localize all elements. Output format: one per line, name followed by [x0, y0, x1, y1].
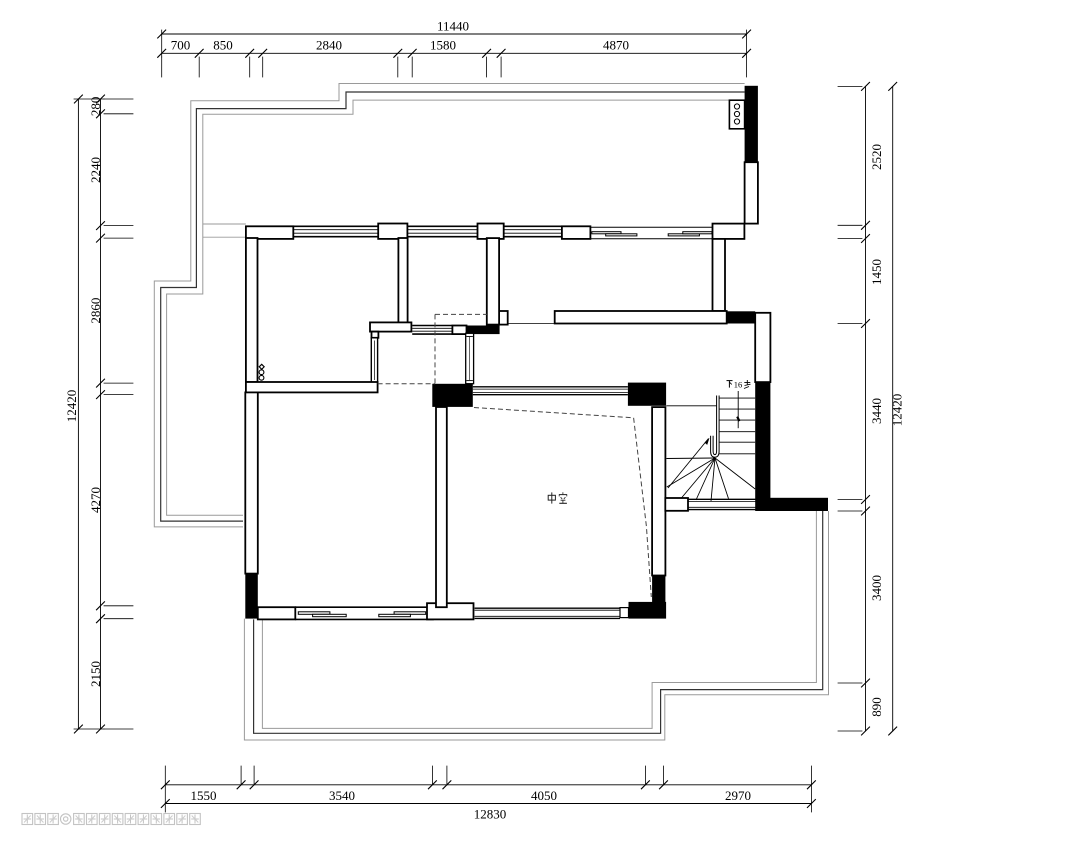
svg-text:3440: 3440	[869, 398, 884, 424]
svg-text:12830: 12830	[474, 807, 507, 822]
svg-text:3400: 3400	[869, 575, 884, 601]
svg-text:1550: 1550	[191, 788, 217, 803]
svg-text:280: 280	[88, 97, 103, 117]
svg-text:12420: 12420	[890, 394, 905, 427]
svg-text:4050: 4050	[531, 788, 557, 803]
svg-text:2150: 2150	[88, 661, 103, 687]
svg-text:2520: 2520	[869, 144, 884, 170]
svg-text:3540: 3540	[329, 788, 355, 803]
svg-text:11440: 11440	[437, 19, 469, 34]
svg-text:700: 700	[171, 38, 191, 53]
svg-text:890: 890	[869, 697, 884, 717]
svg-text:850: 850	[213, 38, 233, 53]
svg-text:4870: 4870	[603, 38, 629, 53]
svg-text:1580: 1580	[430, 38, 456, 53]
svg-text:2860: 2860	[88, 298, 103, 324]
svg-text:12420: 12420	[64, 390, 79, 423]
svg-text:2840: 2840	[316, 38, 342, 53]
svg-text:1450: 1450	[869, 259, 884, 285]
svg-text:2970: 2970	[725, 788, 751, 803]
svg-text:4270: 4270	[88, 487, 103, 513]
svg-text:2240: 2240	[88, 157, 103, 183]
svg-text:16: 16	[734, 379, 743, 389]
